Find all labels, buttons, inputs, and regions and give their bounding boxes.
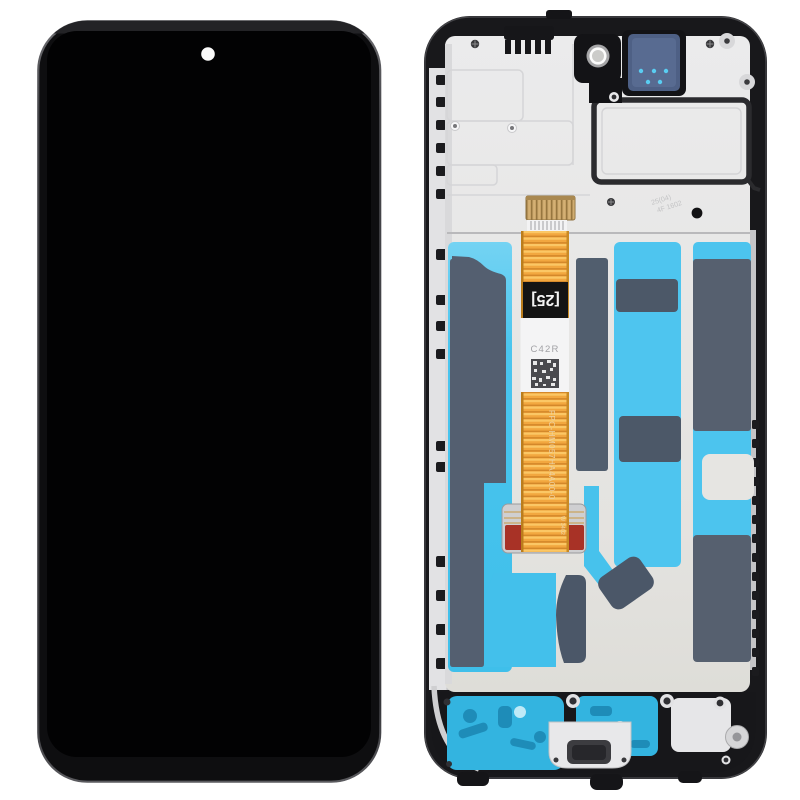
svg-text:W 3402: W 3402 (559, 516, 565, 535)
svg-text:FPC-HM057HA4A00-0: FPC-HM057HA4A00-0 (547, 410, 556, 500)
svg-text:C42R: C42R (530, 344, 559, 355)
svg-text:[25]: [25] (531, 291, 559, 308)
